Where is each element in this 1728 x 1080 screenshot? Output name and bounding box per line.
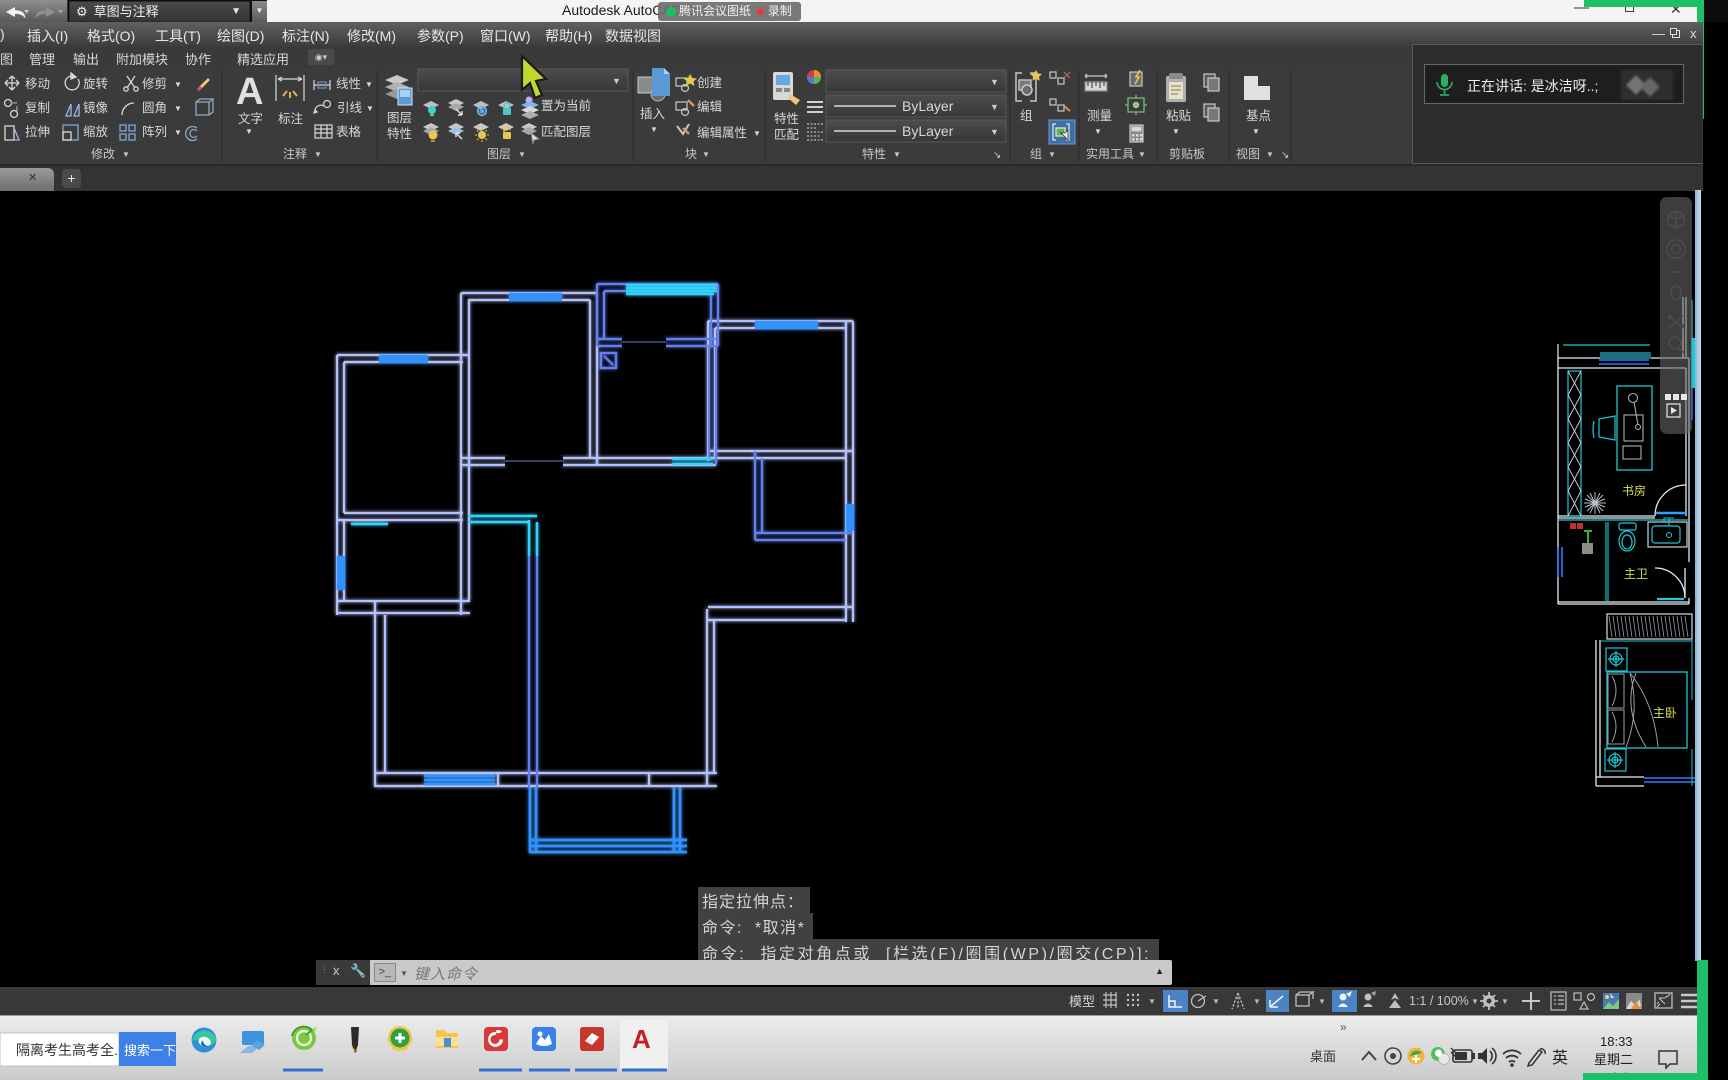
svg-text:桌面: 桌面 (1310, 1049, 1336, 1064)
svg-text:▼: ▼ (1501, 997, 1509, 1006)
svg-text:英: 英 (1552, 1049, 1568, 1067)
svg-text:搜索一下: 搜索一下 (124, 1043, 176, 1058)
svg-text:模型: 模型 (1069, 994, 1095, 1009)
svg-text:A: A (632, 1024, 651, 1054)
svg-text:主卧: 主卧 (1653, 706, 1677, 720)
svg-text:!: ! (1639, 1002, 1641, 1011)
svg-text:▼: ▼ (1471, 997, 1479, 1006)
svg-text:1:1 / 100%: 1:1 / 100% (1409, 994, 1469, 1008)
svg-text:▼: ▼ (1318, 997, 1326, 1006)
svg-text:»: » (1340, 1020, 1347, 1034)
svg-text:18:33: 18:33 (1600, 1034, 1633, 1049)
svg-text:主卫: 主卫 (1624, 567, 1648, 581)
svg-text:▼: ▼ (1253, 997, 1261, 1006)
svg-text:▼: ▼ (1212, 997, 1220, 1006)
svg-text:隔离考生高考全...: 隔离考生高考全... (16, 1042, 126, 1058)
svg-text:星期二: 星期二 (1594, 1052, 1633, 1067)
svg-text:书房: 书房 (1622, 483, 1646, 498)
svg-text:▼: ▼ (1148, 997, 1156, 1006)
